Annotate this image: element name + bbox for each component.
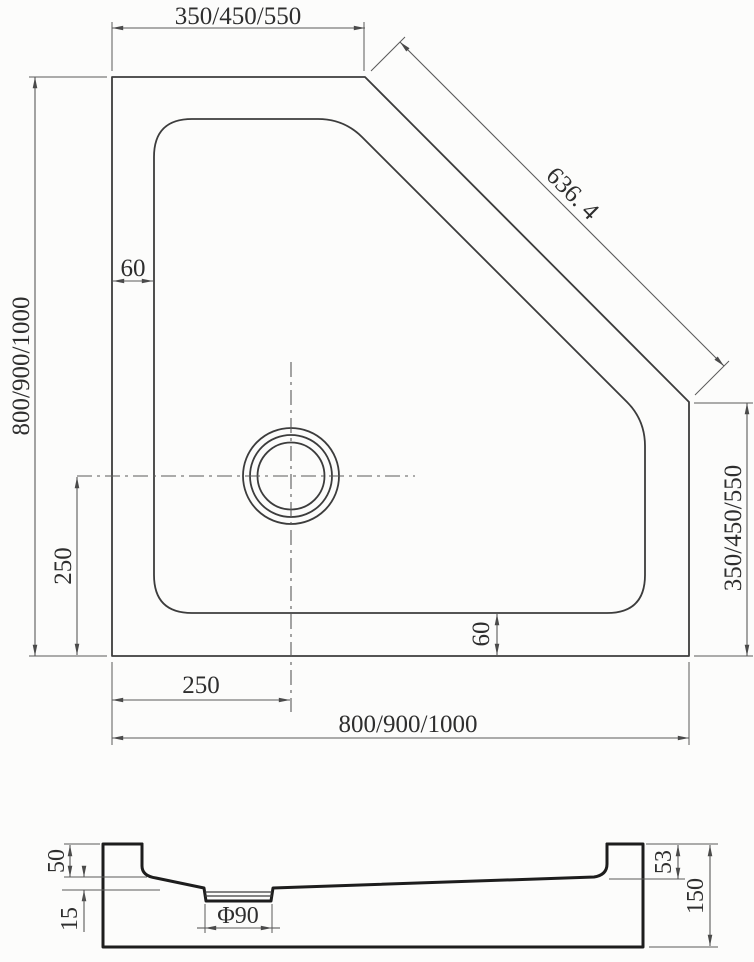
dim-drain-offset-left-label: 250 [50, 547, 77, 585]
dim-drain-offset-left: 250 [50, 477, 77, 655]
plan-view: 350/450/550 636. 4 800/900/1000 60 [8, 3, 753, 745]
dim-drain-diameter: Φ90 [197, 903, 280, 933]
shower-tray-drawing: 350/450/550 636. 4 800/900/1000 60 [0, 0, 754, 962]
dim-rim-width-bottom: 60 [468, 614, 497, 655]
dim-rim-height-right-label: 53 [651, 850, 677, 874]
dim-total-height-label: 150 [683, 878, 709, 914]
dim-rim-height-left: 50 [44, 844, 147, 877]
dim-rim-width-top-label: 60 [121, 255, 146, 282]
dim-drain-offset-bottom-label: 250 [182, 672, 220, 699]
dim-rim-height-right: 53 [609, 844, 718, 879]
dim-floor-drop: 15 [57, 868, 160, 932]
dim-diagonal-label: 636. 4 [541, 162, 605, 226]
dim-bottom-width-label: 800/900/1000 [339, 711, 478, 738]
dim-right-height-label: 350/450/550 [720, 465, 747, 591]
dim-drain-diameter-label: Φ90 [217, 903, 259, 929]
dim-floor-drop-label: 15 [57, 907, 83, 931]
section-view: 50 15 Φ90 53 [44, 844, 718, 947]
dim-rim-width-top: 60 [113, 255, 153, 282]
technical-drawing-canvas: 350/450/550 636. 4 800/900/1000 60 [0, 0, 754, 962]
dim-drain-offset-bottom: 250 [112, 672, 290, 700]
drain-recess-lines [205, 892, 272, 896]
dim-rim-width-bottom-label: 60 [468, 622, 495, 647]
dim-top-width: 350/450/550 [112, 3, 365, 71]
dim-right-height: 350/450/550 [694, 403, 753, 656]
drain-center-lines [77, 362, 415, 712]
dim-rim-height-left-label: 50 [44, 849, 70, 873]
tray-outer-outline [112, 77, 689, 656]
dim-left-height-label: 800/900/1000 [8, 297, 35, 436]
dim-diagonal: 636. 4 [371, 37, 729, 395]
dim-top-width-label: 350/450/550 [175, 3, 301, 30]
section-outer-profile [103, 844, 643, 947]
